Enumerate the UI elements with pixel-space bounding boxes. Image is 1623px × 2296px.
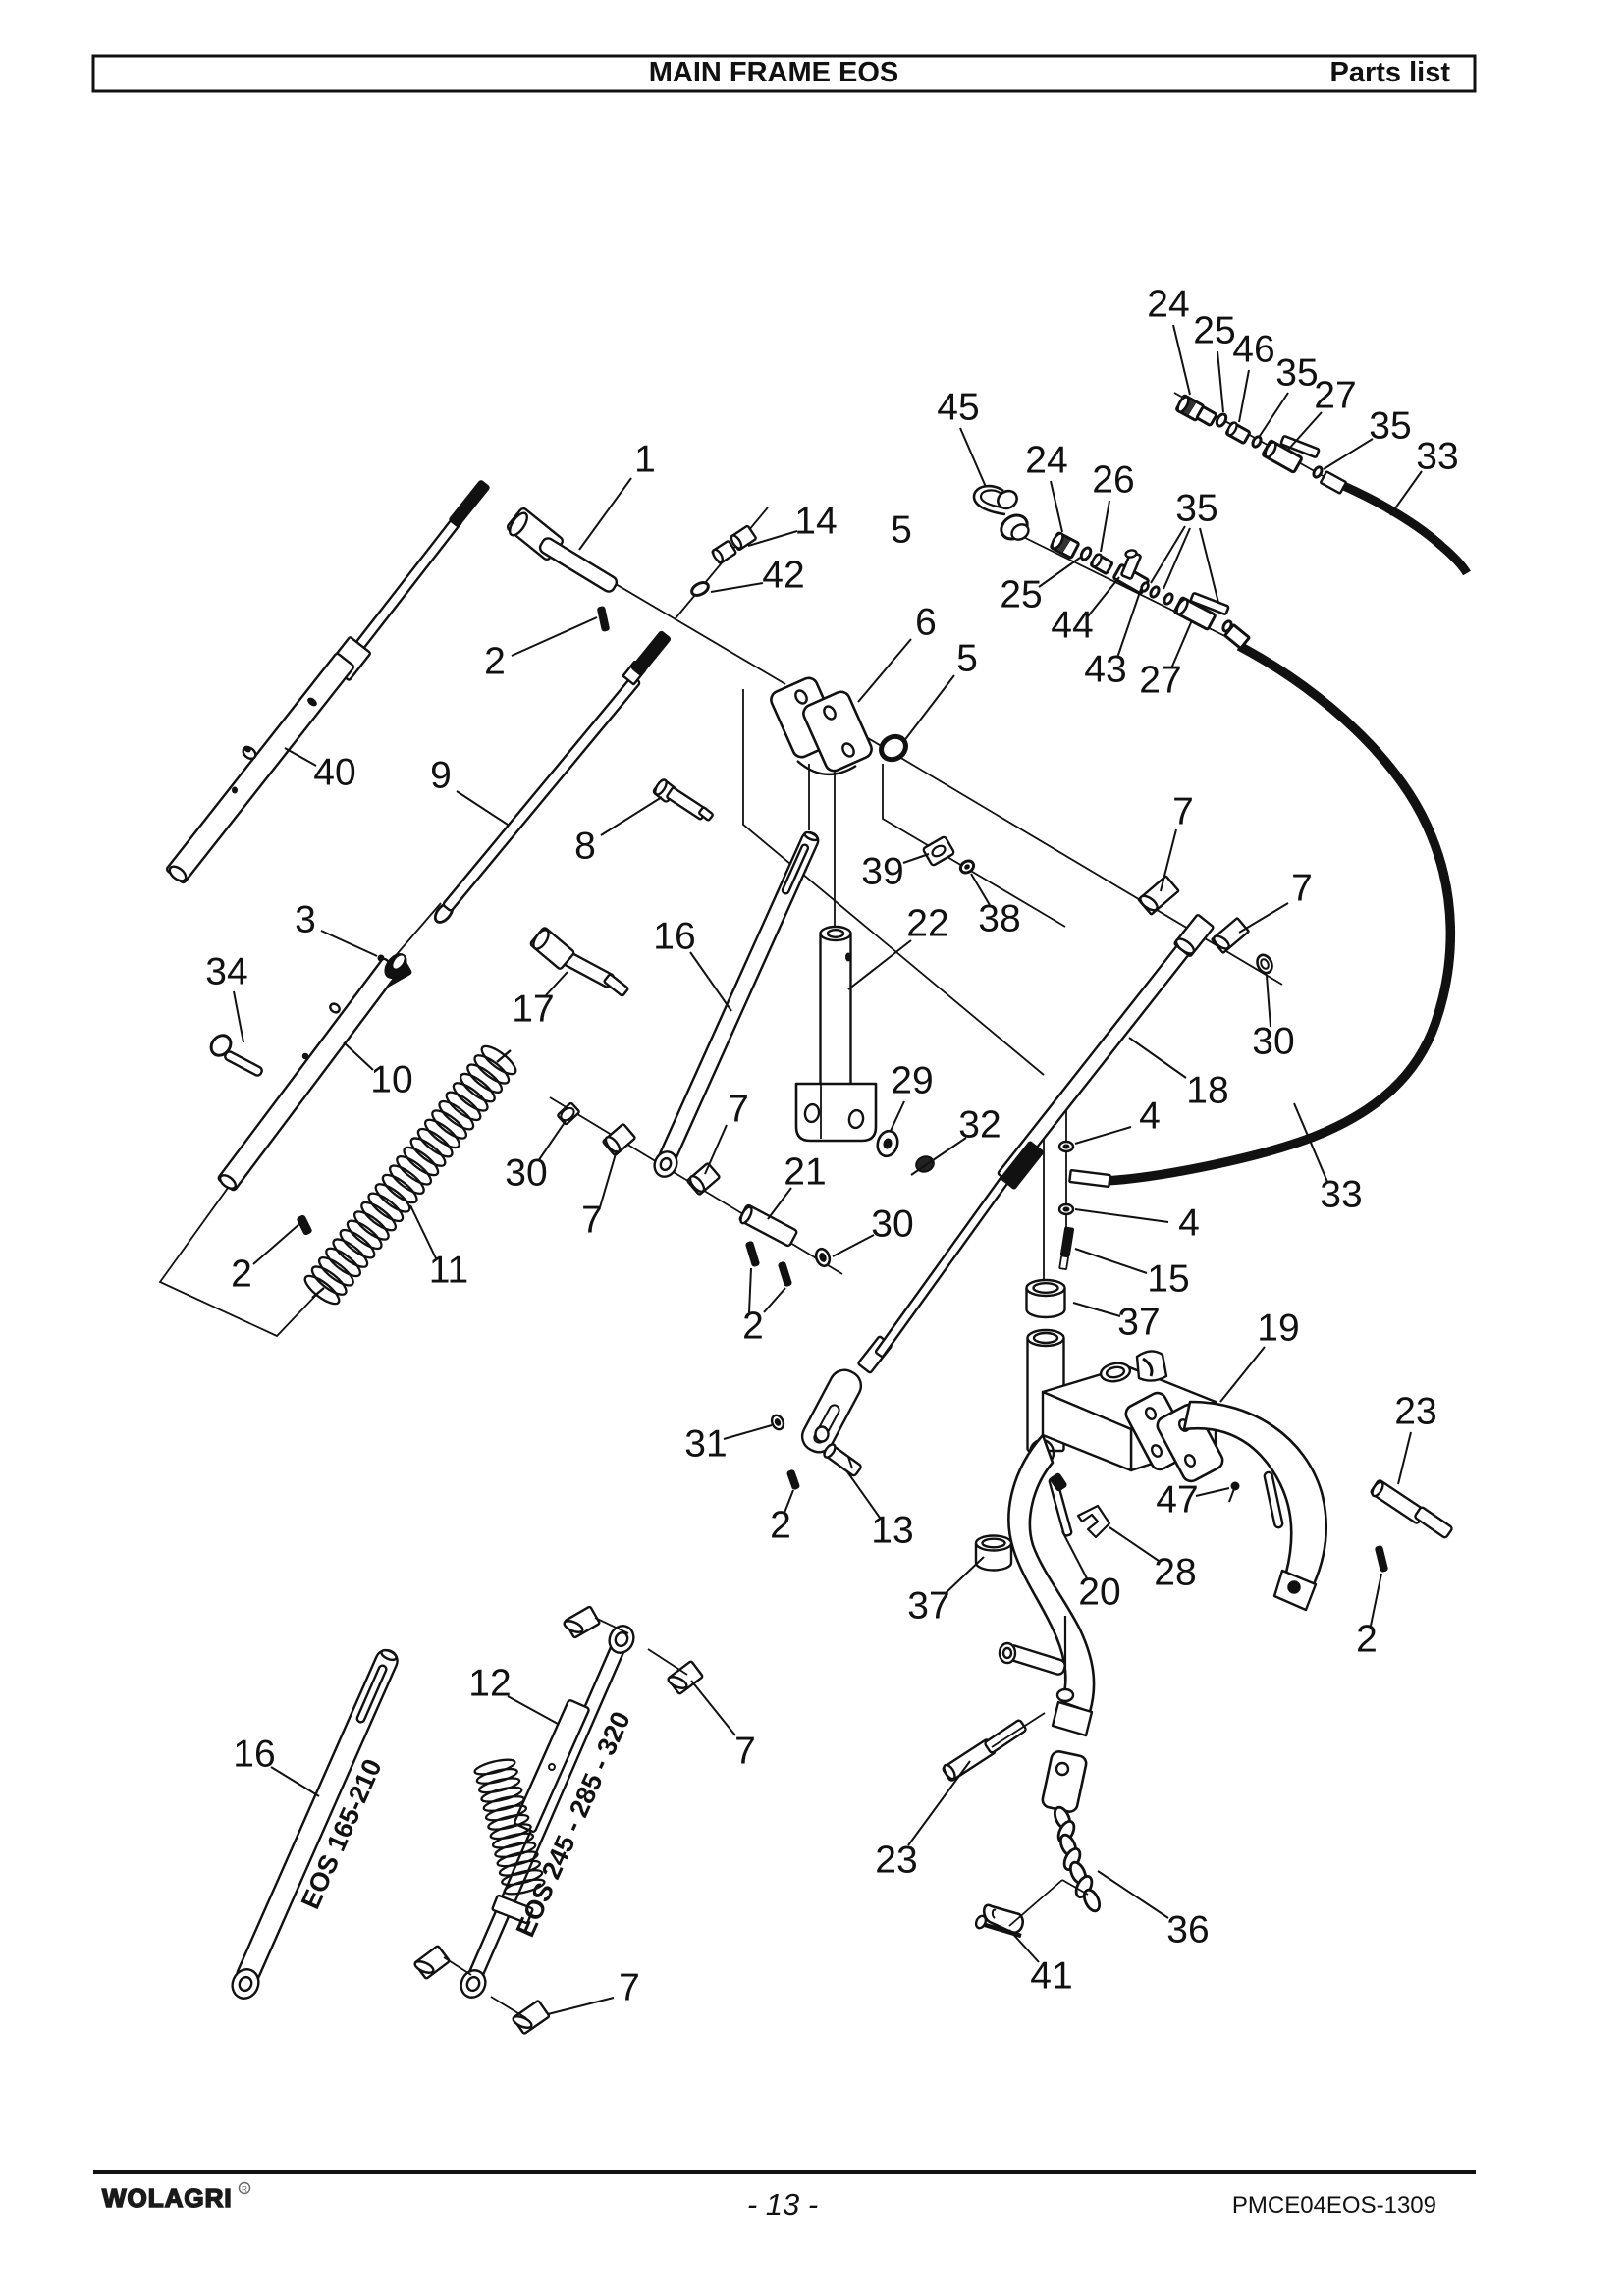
svg-text:35: 35 [1275,351,1318,394]
svg-text:- 13 -: - 13 - [747,2187,818,2221]
svg-text:2: 2 [484,640,506,682]
svg-text:16: 16 [653,915,695,957]
svg-text:7: 7 [1172,790,1194,832]
svg-text:37: 37 [907,1584,949,1627]
svg-text:R: R [242,2185,247,2194]
svg-text:19: 19 [1257,1307,1299,1349]
svg-text:27: 27 [1314,374,1356,416]
svg-text:45: 45 [937,386,979,428]
svg-text:12: 12 [468,1662,511,1704]
svg-text:20: 20 [1078,1571,1120,1613]
svg-text:39: 39 [861,850,903,892]
svg-text:2: 2 [1356,1618,1378,1660]
svg-text:25: 25 [1000,573,1042,615]
svg-text:7: 7 [581,1199,603,1241]
svg-text:7: 7 [728,1088,749,1130]
svg-text:46: 46 [1232,328,1274,370]
svg-text:30: 30 [871,1202,913,1245]
svg-text:10: 10 [370,1058,412,1100]
svg-text:22: 22 [906,902,948,944]
svg-text:7: 7 [734,1730,756,1772]
svg-text:24: 24 [1147,283,1189,325]
svg-text:2: 2 [742,1305,764,1347]
svg-text:42: 42 [762,554,804,596]
svg-text:36: 36 [1166,1908,1209,1950]
svg-text:24: 24 [1025,439,1067,481]
svg-text:35: 35 [1175,487,1217,529]
svg-text:2: 2 [770,1504,791,1546]
svg-text:23: 23 [1394,1390,1436,1432]
svg-text:6: 6 [915,601,937,643]
svg-text:MAIN FRAME EOS: MAIN FRAME EOS [649,57,899,88]
svg-text:25: 25 [1193,309,1235,351]
svg-text:7: 7 [619,1966,640,2008]
svg-text:23: 23 [875,1839,917,1881]
svg-text:35: 35 [1369,404,1411,447]
svg-text:29: 29 [891,1059,933,1101]
svg-text:33: 33 [1416,435,1458,477]
svg-text:3: 3 [295,898,316,940]
svg-text:30: 30 [1252,1020,1294,1062]
svg-text:27: 27 [1139,659,1181,701]
svg-text:8: 8 [574,825,596,867]
svg-text:9: 9 [430,754,452,796]
svg-text:15: 15 [1147,1257,1189,1300]
svg-text:31: 31 [684,1422,727,1465]
svg-text:43: 43 [1084,648,1126,690]
svg-text:21: 21 [784,1150,826,1193]
svg-text:28: 28 [1154,1551,1196,1593]
svg-text:26: 26 [1092,458,1134,501]
svg-text:5: 5 [891,508,912,551]
svg-text:Parts list: Parts list [1330,57,1451,88]
svg-text:5: 5 [956,637,978,679]
svg-text:37: 37 [1117,1301,1160,1343]
svg-text:PMCE04EOS-1309: PMCE04EOS-1309 [1232,2192,1436,2218]
svg-text:16: 16 [233,1733,275,1775]
svg-text:1: 1 [634,438,656,480]
svg-text:4: 4 [1139,1095,1161,1137]
svg-text:14: 14 [794,500,837,542]
svg-text:18: 18 [1186,1069,1228,1111]
svg-text:4: 4 [1178,1201,1200,1244]
svg-text:47: 47 [1156,1478,1198,1521]
svg-text:40: 40 [313,751,355,793]
svg-text:34: 34 [205,950,247,992]
svg-text:38: 38 [978,897,1020,939]
svg-text:2: 2 [231,1253,252,1295]
svg-text:WOLAGRI: WOLAGRI [102,2183,233,2213]
svg-text:44: 44 [1051,604,1093,646]
svg-text:7: 7 [1291,867,1313,909]
